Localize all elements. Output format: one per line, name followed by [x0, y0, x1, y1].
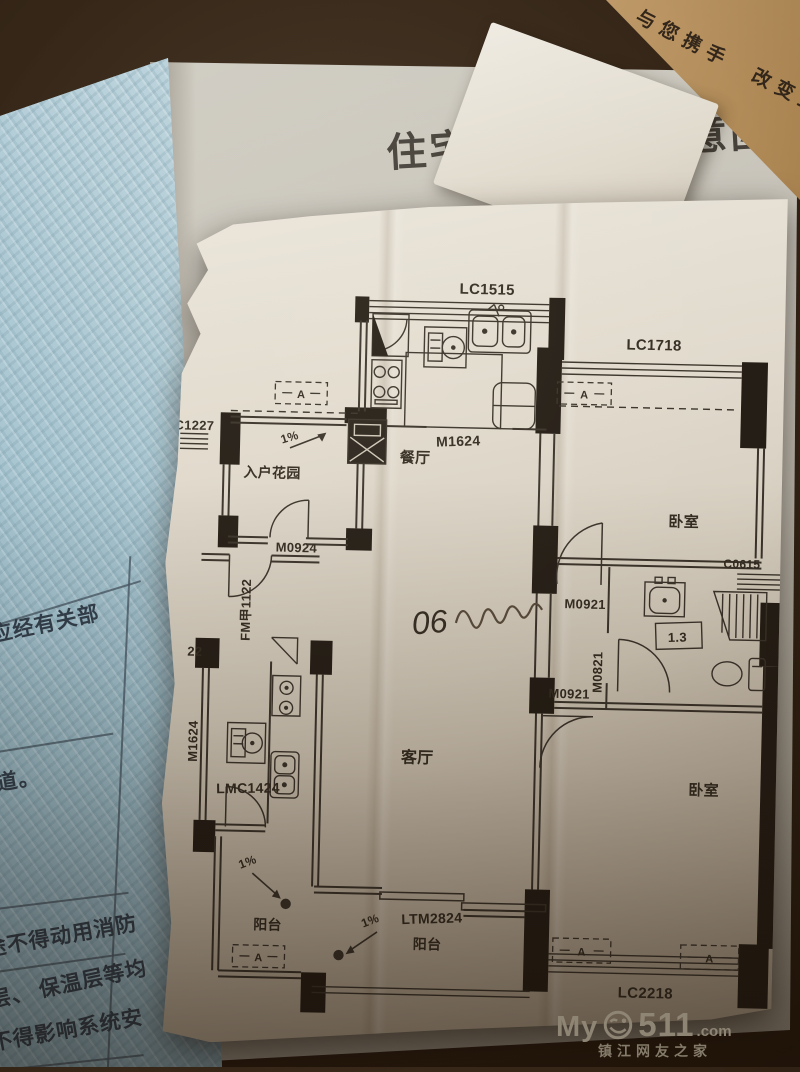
label-ltm2824: LTM2824 — [401, 909, 462, 927]
door-m0821 — [618, 639, 671, 692]
blue-page-text: 应经有关部 — [0, 597, 102, 649]
room-bedroom-top: 卧室 — [668, 512, 699, 531]
label-fm1122: FM甲1122 — [238, 579, 254, 641]
stove2-icon — [272, 676, 301, 717]
shower-icon — [713, 592, 767, 641]
svg-text:1%: 1% — [237, 852, 259, 871]
fridge-icon — [492, 382, 535, 429]
floor-plan: A A A A A — [160, 183, 792, 1065]
counter — [405, 352, 503, 428]
label-lc1515: LC1515 — [459, 281, 515, 299]
svg-text:A: A — [297, 389, 306, 401]
table-rule — [0, 1054, 144, 1072]
label-m1624-top: M1624 — [436, 432, 481, 449]
room-dining: 餐厅 — [400, 448, 431, 467]
svg-text:A: A — [580, 389, 589, 401]
windows — [168, 296, 788, 1003]
blue-page-text: 不得影响系统安 — [0, 1001, 145, 1057]
label-c1227: C1227 — [174, 417, 214, 433]
room-balcony-bottom: 阳台 — [413, 936, 442, 953]
corner-shelf-icon — [271, 637, 298, 664]
label-lc2218: LC2218 — [618, 984, 674, 1002]
slope-arrows: 1% 1% 1% — [234, 427, 392, 955]
bay-window-dashed — [559, 406, 735, 410]
window-lc1718 — [562, 362, 742, 378]
label-m0924: M0924 — [276, 540, 318, 556]
svg-text:1%: 1% — [359, 911, 381, 930]
room-bedroom-bottom: 卧室 — [688, 781, 719, 800]
slope-arrow-bottom-balcony: 1% — [346, 910, 382, 955]
watermark-tagline: 镇江网友之家 — [556, 1041, 732, 1061]
ac-unit: A — [557, 382, 611, 405]
label-22: 22 — [187, 644, 202, 659]
floor-drain — [281, 899, 290, 908]
partition-walls — [192, 317, 771, 989]
table-rule — [0, 733, 113, 754]
svg-text:1%: 1% — [279, 428, 300, 447]
ac-unit: A — [680, 945, 739, 970]
svg-text:A: A — [577, 947, 586, 959]
balcony-edge — [312, 986, 530, 997]
ac-platform-dashed — [231, 410, 361, 413]
watermark-number: 511 — [638, 1006, 694, 1044]
kitchen-sink-icon — [468, 304, 531, 353]
table-rule — [0, 892, 129, 910]
room-living: 客厅 — [401, 747, 434, 767]
watermark-my: My — [556, 1011, 598, 1044]
svg-text:A: A — [705, 953, 714, 965]
room-entry-garden: 入户花园 — [243, 464, 301, 481]
toilet-icon — [712, 657, 766, 690]
label-m0821: M0821 — [590, 651, 606, 693]
window-c0615 — [737, 574, 781, 590]
door-m0924 — [270, 499, 309, 538]
label-m0921-top: M0921 — [564, 596, 606, 612]
smiley-icon — [601, 1008, 635, 1042]
door-m0921-top — [556, 522, 602, 585]
watermark: My 511 .com 镇江网友之家 — [556, 1006, 732, 1061]
load-bearing-walls — [187, 290, 789, 1023]
handwritten-note: 06 — [410, 595, 544, 642]
corner-cabinet-icon — [372, 314, 409, 357]
label-lmc1424: LMC1424 — [216, 780, 280, 797]
floor-plan-sheet: A A A A A — [150, 183, 792, 1069]
ac-unit: A — [232, 945, 284, 968]
handwriting-text: 06 — [410, 603, 449, 642]
label-lc1718: LC1718 — [626, 336, 682, 354]
blue-page-text: 道。 — [0, 761, 42, 798]
door-m0921-mid — [540, 716, 593, 769]
sliding-door-ltm2824 — [380, 892, 546, 912]
label-c0615: C0615 — [723, 557, 760, 572]
handwritten-scribble — [455, 603, 543, 629]
appliance-icon — [424, 327, 467, 368]
washbasin-icon — [644, 577, 685, 617]
svg-text:A: A — [254, 952, 263, 964]
ac-unit: A — [275, 382, 327, 405]
label-m0921-mid: M0921 — [548, 686, 590, 702]
label-bath-note: 1.3 — [668, 629, 687, 645]
ac-unit-symbols: A A A A A — [232, 375, 751, 978]
room-balcony-left: 阳台 — [253, 916, 282, 933]
slope-arrow-left-balcony: 1% — [236, 852, 282, 899]
appliance2-icon — [227, 723, 266, 764]
floor-drain — [334, 950, 343, 959]
slope-arrow-entry: 1% — [279, 428, 327, 449]
flue-shaft — [348, 419, 387, 464]
label-m1624-left: M1624 — [185, 720, 201, 762]
stove-icon — [371, 360, 402, 409]
window-c1227 — [180, 433, 208, 449]
table-rule-vertical — [107, 556, 131, 1071]
